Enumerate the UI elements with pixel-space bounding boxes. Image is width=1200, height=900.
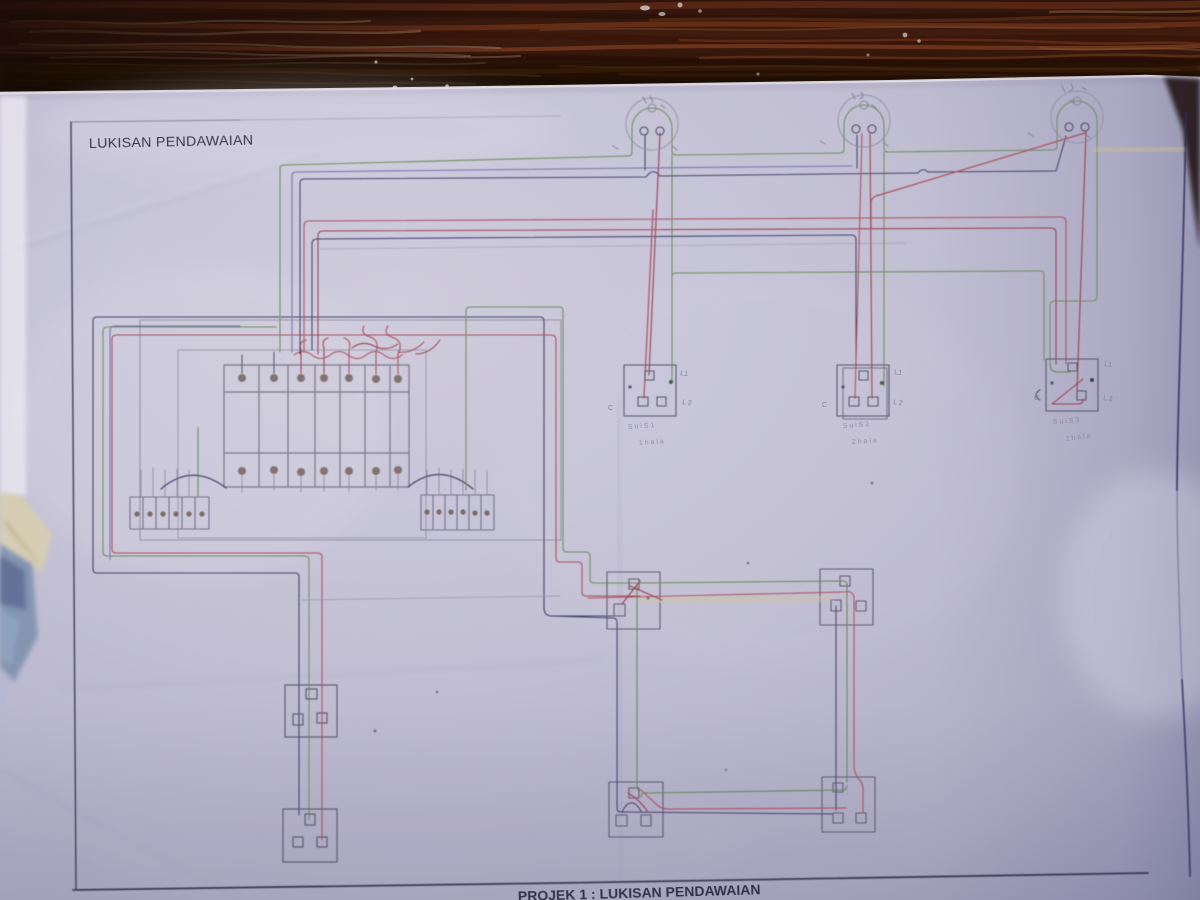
svg-text:L 2: L 2 [893,399,903,407]
svg-text:C: C [608,405,613,412]
svg-text:L1: L1 [680,370,689,378]
svg-text:L 2: L 2 [1103,395,1113,403]
svg-text:L1: L1 [894,369,903,377]
svg-text:L1: L1 [1104,361,1113,369]
svg-text:C: C [1034,395,1039,402]
svg-text:C: C [822,402,827,409]
svg-text:L 2: L 2 [682,399,692,407]
